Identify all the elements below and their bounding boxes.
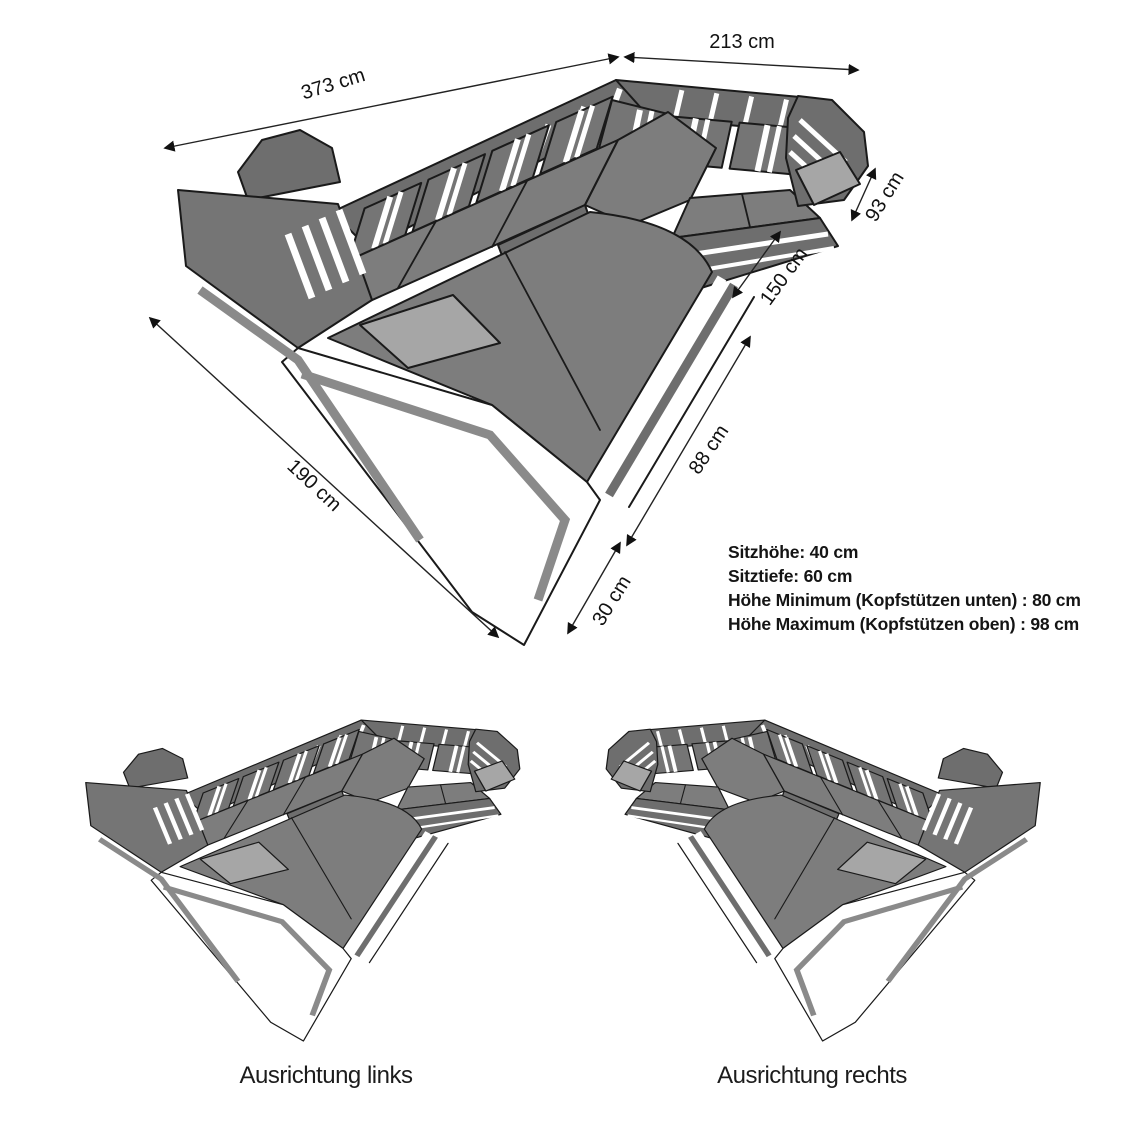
spec-seat-height: Sitzhöhe: 40 cm [728,542,858,562]
right-armrest [786,96,868,206]
caption-variant-right: Ausrichtung rechts [717,1062,907,1089]
spec-height-max: Höhe Maximum (Kopfstützen oben) : 98 cm [728,614,1079,634]
spec-height-min: Höhe Minimum (Kopfstützen unten) : 80 cm [728,590,1081,610]
dimension-label-right-width: 213 cm [709,31,775,53]
left-armrest-headrest [238,130,340,200]
dimension-label-mid-depth: 88 cm [685,421,734,478]
caption-variant-left: Ausrichtung links [240,1062,413,1089]
diagram-canvas: 373 cm 213 cm 93 cm 150 cm 88 cm 30 cm 1… [0,0,1134,1134]
sofa-variant-left [86,720,520,1041]
dimension-arrow-right-width [625,57,858,70]
dimension-label-back-width: 373 cm [299,64,368,104]
sofa-variant-right [606,720,1040,1041]
spec-text-block: Sitzhöhe: 40 cm Sitztiefe: 60 cm Höhe Mi… [728,542,1081,634]
spec-seat-depth: Sitztiefe: 60 cm [728,566,852,586]
dimension-label-front-depth: 30 cm [588,572,636,630]
dimension-label-right-arm-depth: 93 cm [861,168,909,226]
dimension-label-left-depth: 190 cm [283,455,346,516]
sofa-dimension-diagram: 373 cm 213 cm 93 cm 150 cm 88 cm 30 cm 1… [0,0,1134,1134]
